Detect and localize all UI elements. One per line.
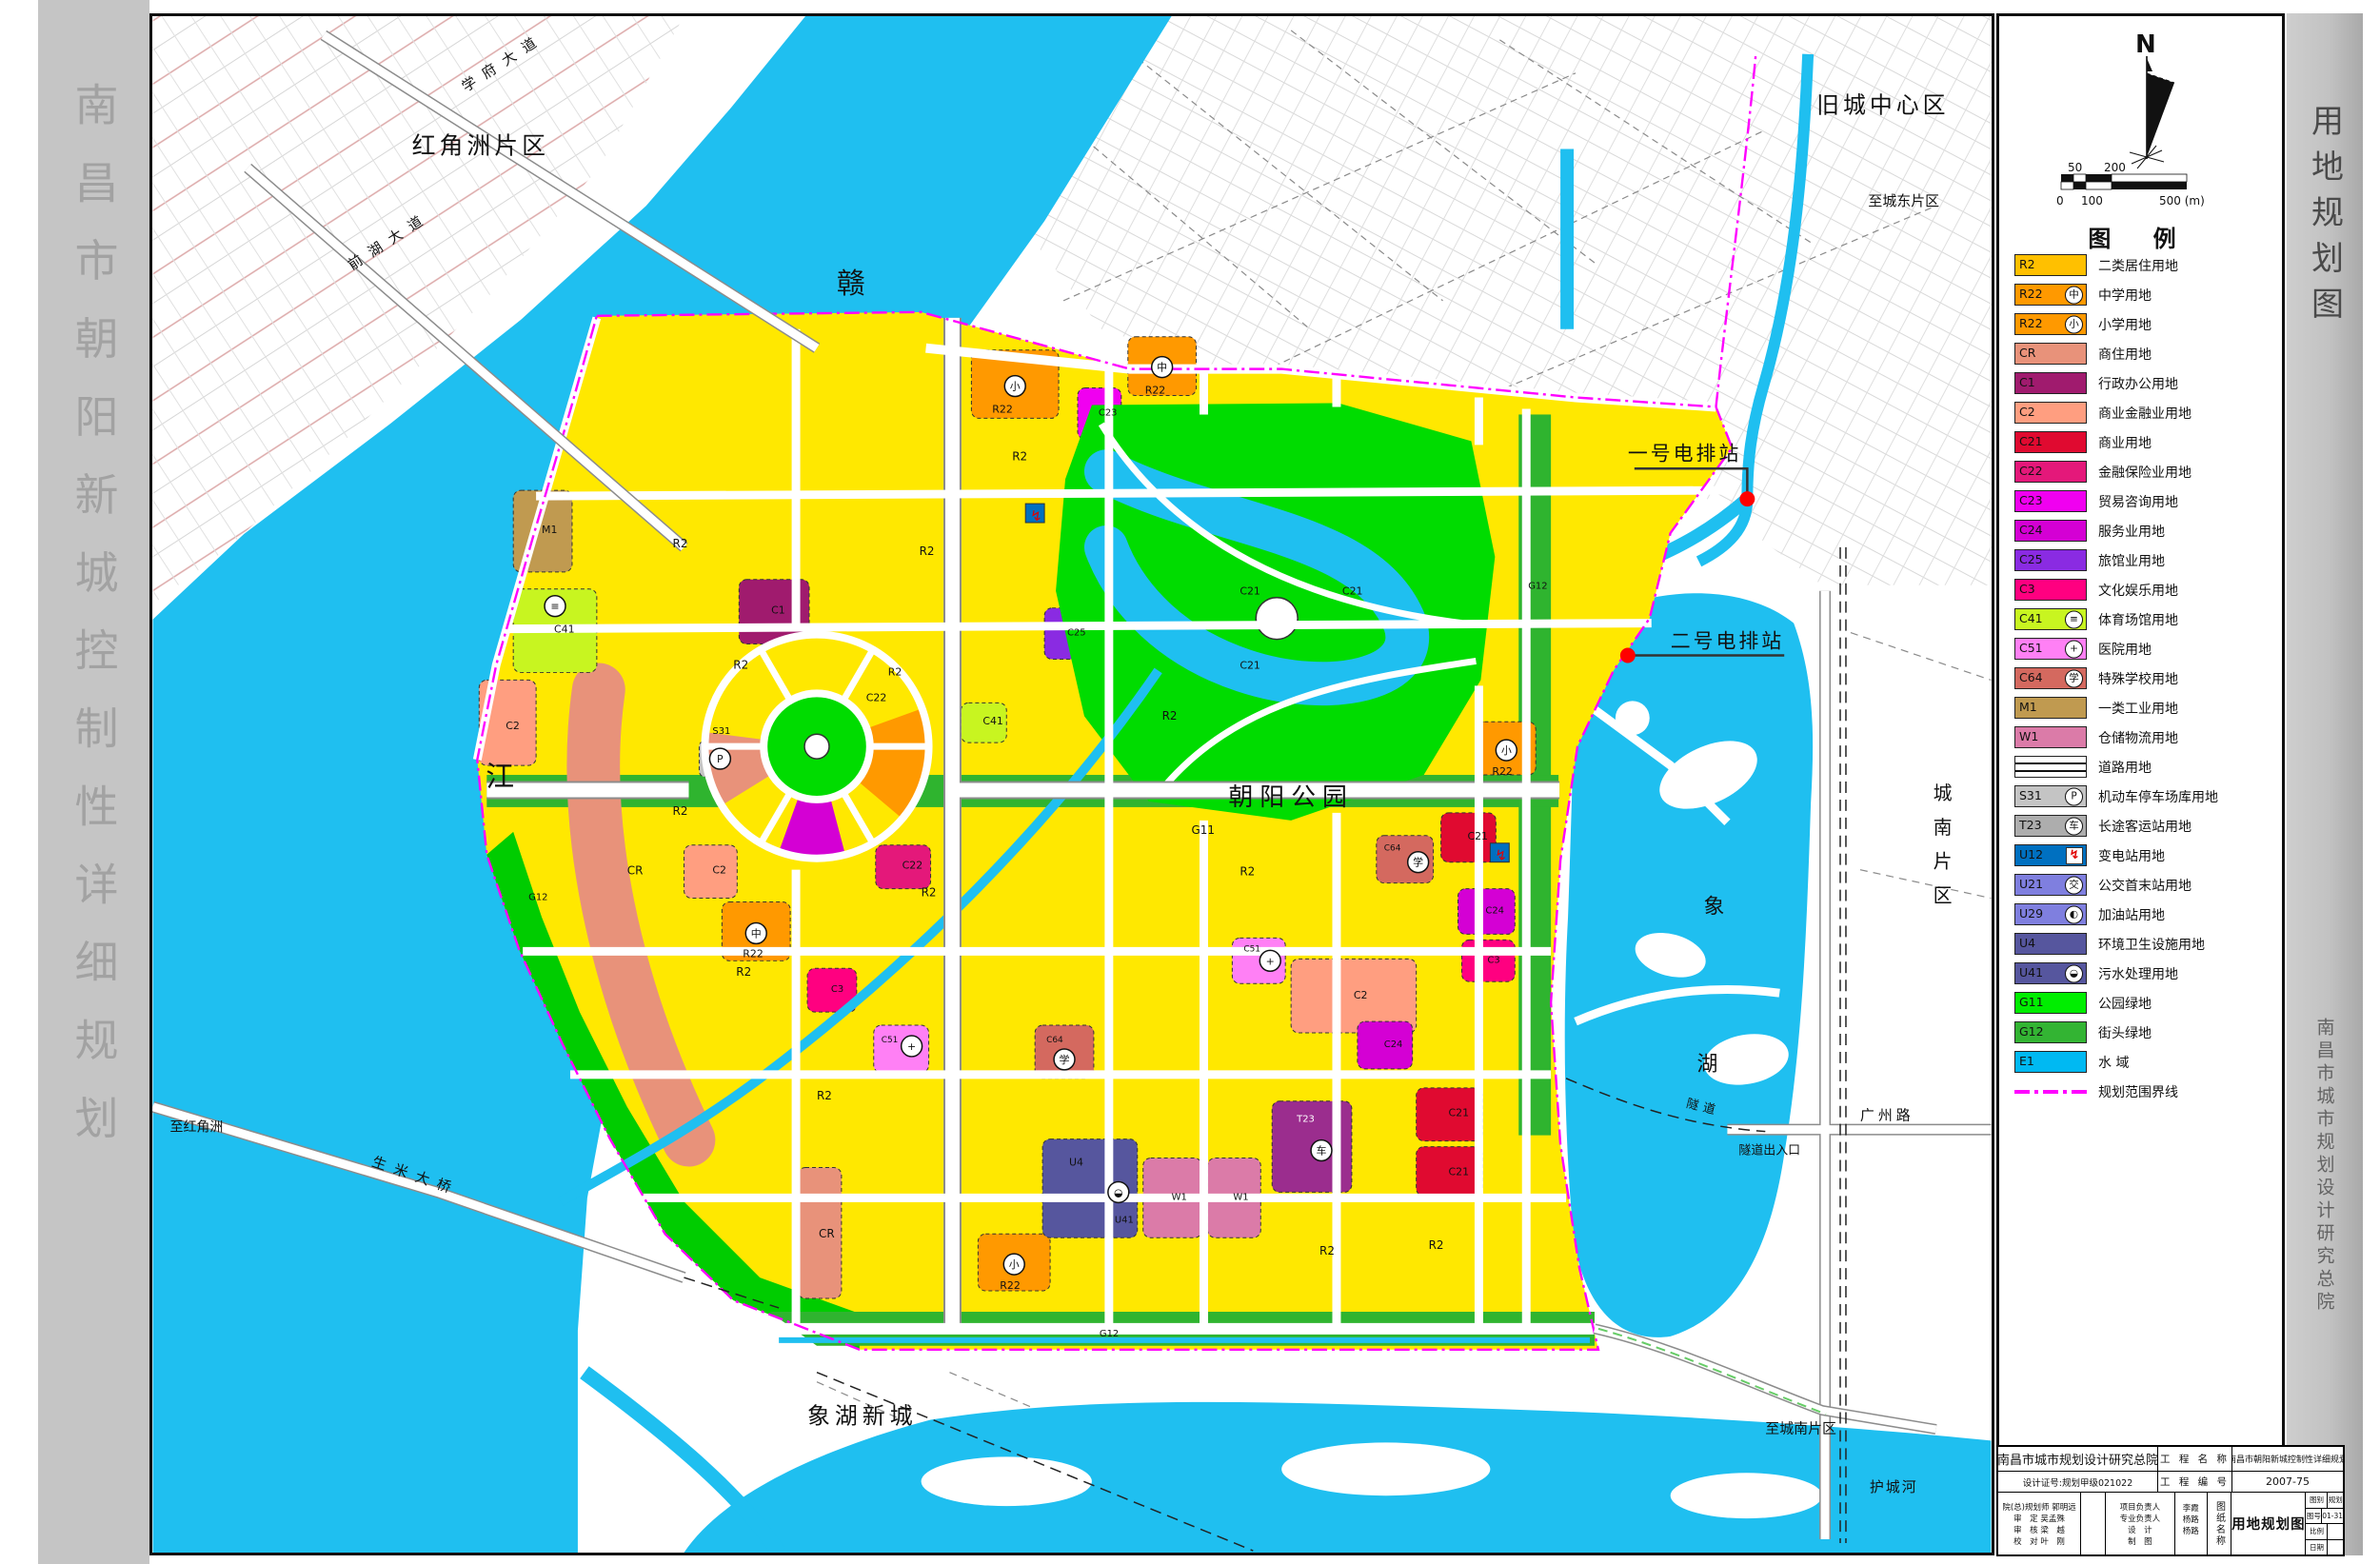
legend-row[interactable]: C64学特殊学校用地 bbox=[2014, 663, 2276, 693]
legend-label: 规划范围界线 bbox=[2098, 1082, 2178, 1101]
parcel-label: CR bbox=[819, 1227, 835, 1240]
color-swatch: C1 bbox=[2014, 372, 2087, 394]
legend-code: CR bbox=[2015, 347, 2035, 360]
legend-row[interactable]: C2商业金融业用地 bbox=[2014, 398, 2276, 427]
label-to-chengdong: 至城东片区 bbox=[1868, 192, 1939, 209]
legend-code: W1 bbox=[2015, 731, 2038, 743]
color-swatch: G12 bbox=[2014, 1021, 2087, 1043]
parcel-label: C21 bbox=[1449, 1165, 1470, 1178]
scale-500: 500 (m) bbox=[2159, 194, 2205, 208]
north-arrow-icon: N bbox=[2130, 30, 2174, 168]
label-to-chengnan: 至城南片区 bbox=[1765, 1419, 1836, 1436]
legend-label: 小学用地 bbox=[2098, 315, 2152, 334]
tb-no-label: 工 程 编 号 bbox=[2158, 1472, 2232, 1492]
parcel-label: G12 bbox=[528, 893, 547, 903]
tb-institute: 南昌市城市规划设计研究总院 bbox=[1998, 1447, 2158, 1471]
facility-icon-glyph: P bbox=[717, 753, 724, 765]
legend-code: C41 bbox=[2015, 613, 2043, 625]
parcel-label: C21 bbox=[1240, 659, 1260, 671]
legend-glyph-icon: ◒ bbox=[2065, 964, 2083, 982]
tb-meta-grid: 图别规划图号01-31比例日期 bbox=[2306, 1493, 2343, 1554]
legend-label: 医院用地 bbox=[2098, 640, 2152, 659]
legend-row[interactable]: U12↯变电站用地 bbox=[2014, 841, 2276, 870]
legend-label: 文化娱乐用地 bbox=[2098, 581, 2178, 600]
legend-code: S31 bbox=[2015, 790, 2042, 802]
legend-glyph-icon: 中 bbox=[2065, 286, 2083, 304]
parcel-label: R22 bbox=[1000, 1279, 1021, 1292]
legend-code: G11 bbox=[2015, 997, 2044, 1009]
parcel-label: R2 bbox=[1012, 449, 1027, 463]
parcel-label: U41 bbox=[1115, 1215, 1134, 1225]
tb-role-label: 制 图 bbox=[2128, 1535, 2152, 1547]
tb-meta-label: 日期 bbox=[2306, 1540, 2328, 1555]
bolt-icon: ↯ bbox=[2066, 847, 2083, 864]
legend-label: 变电站用地 bbox=[2098, 846, 2165, 865]
tb-role-name: 杨路 bbox=[2183, 1525, 2199, 1536]
color-swatch: S31P bbox=[2014, 785, 2087, 807]
legend-label: 公园绿地 bbox=[2098, 994, 2152, 1013]
parcel-label: R22 bbox=[743, 947, 764, 960]
legend-label: 行政办公用地 bbox=[2098, 374, 2178, 393]
color-swatch: C51+ bbox=[2014, 638, 2087, 660]
parcel-label: R2 bbox=[1429, 1238, 1444, 1252]
legend-panel: N 50 200 0 100 500 (m) 图 例 R2二类居住用地R22中中… bbox=[1996, 13, 2285, 1555]
tb-designer-labels: 项目负责人专业负责人设 计制 图 bbox=[2106, 1493, 2175, 1554]
legend-label: 二类居住用地 bbox=[2098, 256, 2178, 275]
legend-code: C1 bbox=[2015, 377, 2035, 389]
parcel-label: C23 bbox=[1099, 407, 1118, 418]
color-swatch: C41≡ bbox=[2014, 608, 2087, 630]
parcel-label: C24 bbox=[1485, 905, 1504, 916]
legend-row[interactable]: C21商业用地 bbox=[2014, 427, 2276, 457]
legend-label: 贸易咨询用地 bbox=[2098, 492, 2178, 511]
color-swatch: C22 bbox=[2014, 461, 2087, 483]
scale-bar: 50 200 0 100 500 (m) bbox=[2056, 161, 2205, 208]
parcel-label: C2 bbox=[506, 720, 520, 732]
parcel-label: M1 bbox=[542, 524, 557, 536]
legend-code: U4 bbox=[2015, 938, 2035, 950]
tb-approver-line: 审 核 梁 越 bbox=[2013, 1524, 2065, 1535]
legend-row[interactable]: C3文化娱乐用地 bbox=[2014, 575, 2276, 604]
substation-bolt-icon: ↯ bbox=[1495, 847, 1507, 864]
legend-row[interactable]: U41◒污水处理用地 bbox=[2014, 959, 2276, 988]
legend-code: T23 bbox=[2015, 820, 2042, 832]
parcel-label: G12 bbox=[1528, 582, 1547, 592]
parcel-label: C51 bbox=[1243, 944, 1260, 954]
parcel-label: R2 bbox=[817, 1089, 832, 1102]
legend-label: 一类工业用地 bbox=[2098, 699, 2178, 718]
label-pump1: 一号电排站 bbox=[1628, 442, 1741, 465]
legend-label: 公交首末站用地 bbox=[2098, 876, 2192, 895]
label-xianghu-newtown: 象湖新城 bbox=[807, 1403, 918, 1430]
legend-row[interactable]: C1行政办公用地 bbox=[2014, 368, 2276, 398]
tb-no-value: 2007-75 bbox=[2232, 1472, 2343, 1492]
color-swatch: R22中 bbox=[2014, 284, 2087, 306]
legend-row[interactable]: R2二类居住用地 bbox=[2014, 250, 2276, 280]
legend-row[interactable]: T23车长途客运站用地 bbox=[2014, 811, 2276, 841]
color-swatch: U21交 bbox=[2014, 874, 2087, 896]
tb-role-name: 李霞 bbox=[2183, 1502, 2199, 1514]
parcel-label: R22 bbox=[1492, 765, 1513, 778]
legend-row[interactable]: C22金融保险业用地 bbox=[2014, 457, 2276, 486]
tb-meta-value: 规划 bbox=[2328, 1493, 2343, 1508]
tb-role-label: 项目负责人 bbox=[2120, 1501, 2161, 1513]
facility-icon-glyph: + bbox=[1266, 955, 1275, 967]
legend-code: E1 bbox=[2015, 1056, 2034, 1068]
legend-row[interactable]: C24服务业用地 bbox=[2014, 516, 2276, 545]
legend-row[interactable]: CR商住用地 bbox=[2014, 339, 2276, 368]
legend-code: C2 bbox=[2015, 406, 2035, 419]
label-moat: 护城河 bbox=[1870, 1478, 1918, 1495]
parcel-label: C21 bbox=[1240, 585, 1260, 598]
color-swatch: C64学 bbox=[2014, 667, 2087, 689]
legend-label: 加油站用地 bbox=[2098, 905, 2165, 924]
legend-code: R22 bbox=[2015, 318, 2043, 330]
parcel-label: C21 bbox=[1449, 1107, 1470, 1119]
parcel-label: C21 bbox=[1467, 830, 1488, 842]
facility-icon-glyph: 学 bbox=[1060, 1053, 1070, 1066]
label-hu: 湖 bbox=[1697, 1053, 1718, 1077]
label-hongjiaozhou: 红角洲片区 bbox=[412, 131, 549, 159]
parcel-label: G12 bbox=[1100, 1329, 1119, 1339]
parcel-label: C64 bbox=[1046, 1036, 1063, 1045]
tb-seal-cell bbox=[2081, 1493, 2106, 1554]
legend-label: 体育场馆用地 bbox=[2098, 610, 2178, 629]
facility-icon-glyph: 小 bbox=[1010, 381, 1021, 393]
right-title-strip: 用地规划图 南昌市城市规划设计研究总院 bbox=[2287, 13, 2363, 1555]
legend-code: C21 bbox=[2015, 436, 2043, 448]
legend-code: U21 bbox=[2015, 879, 2043, 891]
legend-glyph-icon: + bbox=[2065, 640, 2083, 658]
tb-cert: 设计证号:规划甲级021022 bbox=[1998, 1472, 2158, 1492]
facility-icon-glyph: ◒ bbox=[1114, 1186, 1123, 1198]
legend-label: 商业用地 bbox=[2098, 433, 2152, 452]
tb-meta-label: 图号 bbox=[2306, 1509, 2322, 1524]
parcel-label: C41 bbox=[554, 624, 575, 636]
chaoyang-park bbox=[1056, 403, 1495, 820]
legend-label: 仓储物流用地 bbox=[2098, 728, 2178, 747]
parcel-label: C3 bbox=[831, 984, 843, 995]
parcel-label: CR bbox=[627, 864, 644, 878]
color-swatch: C25 bbox=[2014, 549, 2087, 571]
parcel-label: C22 bbox=[902, 860, 923, 872]
legend-code: M1 bbox=[2015, 702, 2037, 714]
label-to-hongjiaozhou: 至红角洲 bbox=[170, 1120, 224, 1136]
parcel-label: C41 bbox=[982, 715, 1003, 727]
parcel-label: R2 bbox=[673, 537, 688, 550]
north-arrow-and-scale: N 50 200 0 100 500 (m) bbox=[1999, 16, 2282, 216]
parcel-label: S31 bbox=[712, 726, 730, 737]
legend-label: 商业金融业用地 bbox=[2098, 404, 2192, 423]
color-swatch: R2 bbox=[2014, 254, 2087, 276]
tb-designer-names: 李霞杨路杨路 bbox=[2175, 1493, 2208, 1554]
color-swatch: C2 bbox=[2014, 402, 2087, 424]
legend-label: 旅馆业用地 bbox=[2098, 551, 2165, 570]
legend-code: C25 bbox=[2015, 554, 2043, 566]
title-block: 南昌市城市规划设计研究总院 工 程 名 称 南昌市朝阳新城控制性详细规划 设计证… bbox=[1996, 1445, 2345, 1556]
label-pump2: 二号电排站 bbox=[1671, 630, 1784, 653]
scale-100: 100 bbox=[2081, 194, 2103, 208]
left-title-strip: 南昌市朝阳新城控制性详细规划 bbox=[38, 0, 149, 1564]
tb-role-label: 设 计 bbox=[2128, 1524, 2152, 1535]
parcel-label: T23 bbox=[1296, 1115, 1315, 1125]
legend-code: U12 bbox=[2015, 849, 2043, 861]
legend-row[interactable]: 规划范围界线 bbox=[2014, 1077, 2276, 1106]
parcel-label: C21 bbox=[1342, 585, 1363, 598]
legend-code: U41 bbox=[2015, 967, 2043, 980]
color-swatch: U41◒ bbox=[2014, 962, 2087, 984]
legend-label: 道路用地 bbox=[2098, 758, 2152, 777]
tb-approver-line: 校 对 叶 刚 bbox=[2013, 1535, 2065, 1547]
legend-row[interactable]: E1水 域 bbox=[2014, 1047, 2276, 1077]
scale-50: 50 bbox=[2068, 161, 2082, 174]
legend-row[interactable]: R22小小学用地 bbox=[2014, 309, 2276, 339]
parcel-label: C24 bbox=[1384, 1039, 1403, 1050]
tb-sheet-value: 用地规划图 bbox=[2231, 1493, 2306, 1554]
legend-code: U29 bbox=[2015, 908, 2043, 921]
parcel-label: R22 bbox=[992, 403, 1013, 415]
label-gan: 赣 bbox=[837, 267, 865, 301]
tb-project-label: 工 程 名 称 bbox=[2158, 1447, 2232, 1471]
legend-code: R22 bbox=[2015, 288, 2043, 301]
legend-code: R2 bbox=[2015, 259, 2035, 271]
tb-meta-value bbox=[2328, 1540, 2343, 1555]
legend-label: 特殊学校用地 bbox=[2098, 669, 2178, 688]
color-swatch: M1 bbox=[2014, 697, 2087, 719]
legend-row[interactable]: M1一类工业用地 bbox=[2014, 693, 2276, 723]
legend-row[interactable]: C51+医院用地 bbox=[2014, 634, 2276, 663]
tb-meta-value: 01-31 bbox=[2322, 1509, 2343, 1524]
legend-glyph-icon: 学 bbox=[2065, 669, 2083, 687]
legend-code: C64 bbox=[2015, 672, 2043, 684]
facility-icon-glyph: ≡ bbox=[550, 601, 559, 613]
pump1-dot[interactable] bbox=[1739, 491, 1755, 506]
substation-bolt-icon: ↯ bbox=[1030, 507, 1042, 525]
parcel-label: C1 bbox=[771, 604, 785, 617]
facility-icon-glyph: 学 bbox=[1413, 856, 1423, 869]
color-swatch: CR bbox=[2014, 343, 2087, 365]
color-swatch: U12↯ bbox=[2014, 844, 2087, 866]
parcel-label: C64 bbox=[1384, 844, 1401, 854]
legend-row[interactable]: U29◐加油站用地 bbox=[2014, 900, 2276, 929]
parcel-label: C2 bbox=[712, 864, 726, 877]
scale-200: 200 bbox=[2104, 161, 2126, 174]
north-label: N bbox=[2135, 30, 2156, 59]
tb-role-label: 专业负责人 bbox=[2120, 1513, 2161, 1524]
parcel-label: C51 bbox=[882, 1036, 899, 1045]
label-chengnan: 城南片区 bbox=[1934, 782, 1953, 907]
legend-code: C23 bbox=[2015, 495, 2043, 507]
legend-row[interactable]: R22中中学用地 bbox=[2014, 280, 2276, 309]
legend-items: R2二类居住用地R22中中学用地R22小小学用地CR商住用地C1行政办公用地C2… bbox=[2014, 250, 2276, 1106]
color-swatch: U4 bbox=[2014, 933, 2087, 955]
tb-meta-value bbox=[2328, 1524, 2343, 1539]
tb-meta-label: 比例 bbox=[2306, 1524, 2328, 1539]
facility-icon-glyph: + bbox=[907, 1040, 916, 1053]
legend-code: C3 bbox=[2015, 584, 2035, 596]
scale-0: 0 bbox=[2056, 194, 2064, 208]
parcel-label: R2 bbox=[736, 965, 751, 979]
tb-approver-line: 审 定 吴孟殊 bbox=[2013, 1513, 2065, 1524]
facility-icon-glyph: 小 bbox=[1009, 1258, 1020, 1271]
parcel-label: W1 bbox=[1172, 1192, 1187, 1202]
legend-label: 服务业用地 bbox=[2098, 522, 2165, 541]
parcel-label: C25 bbox=[1067, 628, 1086, 639]
color-swatch: R22小 bbox=[2014, 313, 2087, 335]
label-oldtown: 旧城中心区 bbox=[1816, 92, 1949, 119]
legend-label: 长途客运站用地 bbox=[2098, 817, 2192, 836]
legend-glyph-icon: 交 bbox=[2065, 876, 2083, 894]
legend-code: G12 bbox=[2015, 1026, 2044, 1039]
road-swatch bbox=[2014, 756, 2087, 778]
color-swatch: G11 bbox=[2014, 992, 2087, 1014]
color-swatch: C3 bbox=[2014, 579, 2087, 601]
label-tunnel-gate: 隧道出入口 bbox=[1738, 1143, 1800, 1158]
legend-glyph-icon: P bbox=[2065, 787, 2083, 805]
parcel-label: R2 bbox=[673, 804, 688, 818]
facility-icon-glyph: 中 bbox=[1157, 362, 1167, 374]
parcel-label: R2 bbox=[1240, 865, 1255, 879]
parcel-label: C22 bbox=[866, 691, 887, 703]
legend-row[interactable]: 道路用地 bbox=[2014, 752, 2276, 782]
label-guangzhou-road: 广州路 bbox=[1860, 1107, 1914, 1124]
legend-glyph-icon: ≡ bbox=[2065, 610, 2083, 628]
color-swatch: E1 bbox=[2014, 1051, 2087, 1073]
legend-label: 金融保险业用地 bbox=[2098, 463, 2192, 482]
color-swatch: C23 bbox=[2014, 490, 2087, 512]
tb-approver-line: 院(总)规划师 郭明远 bbox=[2002, 1501, 2075, 1513]
legend-label: 水 域 bbox=[2098, 1053, 2129, 1072]
color-swatch: W1 bbox=[2014, 726, 2087, 748]
tb-approvers: 院(总)规划师 郭明远审 定 吴孟殊审 核 梁 越校 对 叶 刚 bbox=[1998, 1493, 2081, 1554]
legend-glyph-icon: 车 bbox=[2065, 817, 2083, 835]
tb-meta-label: 图别 bbox=[2306, 1493, 2328, 1508]
sheet-title-vertical: 用地规划图 bbox=[2302, 104, 2349, 332]
facility-icon-glyph: 中 bbox=[751, 927, 762, 940]
legend-row[interactable]: S31P机动车停车场库用地 bbox=[2014, 782, 2276, 811]
legend-label: 街头绿地 bbox=[2098, 1023, 2152, 1042]
parcel-label: C2 bbox=[1354, 989, 1368, 1001]
parcel-label: R2 bbox=[733, 658, 748, 671]
parcel-label: C3 bbox=[1487, 955, 1499, 965]
parcel-label: R2 bbox=[1162, 709, 1178, 723]
legend-label: 中学用地 bbox=[2098, 286, 2152, 305]
legend-row[interactable]: G12街头绿地 bbox=[2014, 1018, 2276, 1047]
legend-row[interactable]: C41≡体育场馆用地 bbox=[2014, 604, 2276, 634]
parcel-label: R2 bbox=[888, 665, 902, 678]
parcel-label: R2 bbox=[922, 886, 937, 900]
institute-vertical: 南昌市城市规划设计研究总院 bbox=[2312, 1018, 2338, 1315]
facility-icon-glyph: 车 bbox=[1317, 1144, 1327, 1158]
legend-row[interactable]: W1仓储物流用地 bbox=[2014, 723, 2276, 752]
legend-label: 机动车停车场库用地 bbox=[2098, 787, 2218, 806]
tb-project-value: 南昌市朝阳新城控制性详细规划 bbox=[2232, 1447, 2343, 1471]
parcel-label: R2 bbox=[920, 544, 935, 558]
legend-glyph-icon: ◐ bbox=[2065, 905, 2083, 923]
legend-glyph-icon: 小 bbox=[2065, 315, 2083, 333]
tb-role-name bbox=[2190, 1536, 2192, 1546]
legend-label: 污水处理用地 bbox=[2098, 964, 2178, 983]
color-swatch: U29◐ bbox=[2014, 903, 2087, 925]
color-swatch: T23车 bbox=[2014, 815, 2087, 837]
label-xiang: 象 bbox=[1704, 895, 1725, 919]
parcel-label: R2 bbox=[1319, 1244, 1335, 1257]
parcel-label: R22 bbox=[1145, 385, 1166, 397]
color-swatch: C24 bbox=[2014, 520, 2087, 542]
plan-title-vertical: 南昌市朝阳新城控制性详细规划 bbox=[63, 82, 126, 1173]
label-chaoyang-park: 朝阳公园 bbox=[1228, 783, 1353, 812]
tb-sheet-label: 图纸名称 bbox=[2208, 1493, 2232, 1554]
pump2-dot[interactable] bbox=[1620, 648, 1636, 663]
label-jiang: 江 bbox=[486, 761, 514, 794]
legend-row[interactable]: C23贸易咨询用地 bbox=[2014, 486, 2276, 516]
legend-code: C24 bbox=[2015, 525, 2043, 537]
legend-row[interactable]: U4环境卫生设施用地 bbox=[2014, 929, 2276, 959]
landuse-map[interactable]: R2R2R2R2R2R2R2R2R2R2R2R2R2R22R22R22R22R2… bbox=[152, 16, 1992, 1553]
legend-label: 商住用地 bbox=[2098, 345, 2152, 364]
parcel-label: U4 bbox=[1069, 1157, 1083, 1169]
map-frame: R2R2R2R2R2R2R2R2R2R2R2R2R2R22R22R22R22R2… bbox=[149, 13, 1994, 1555]
facility-icon-glyph: 小 bbox=[1501, 744, 1512, 757]
color-swatch: C21 bbox=[2014, 431, 2087, 453]
tb-role-name: 杨路 bbox=[2183, 1514, 2199, 1525]
legend-row[interactable]: C25旅馆业用地 bbox=[2014, 545, 2276, 575]
legend-label: 环境卫生设施用地 bbox=[2098, 935, 2205, 954]
legend-code: C22 bbox=[2015, 465, 2043, 478]
boundary-line-swatch bbox=[2014, 1080, 2087, 1102]
xiang-lake bbox=[1565, 593, 1813, 1337]
legend-title: 图 例 bbox=[1999, 220, 2282, 253]
legend-row[interactable]: G11公园绿地 bbox=[2014, 988, 2276, 1018]
legend-code: C51 bbox=[2015, 643, 2043, 655]
legend-row[interactable]: U21交公交首末站用地 bbox=[2014, 870, 2276, 900]
parcel-label: W1 bbox=[1233, 1192, 1248, 1202]
parcel-label: G11 bbox=[1192, 823, 1215, 837]
